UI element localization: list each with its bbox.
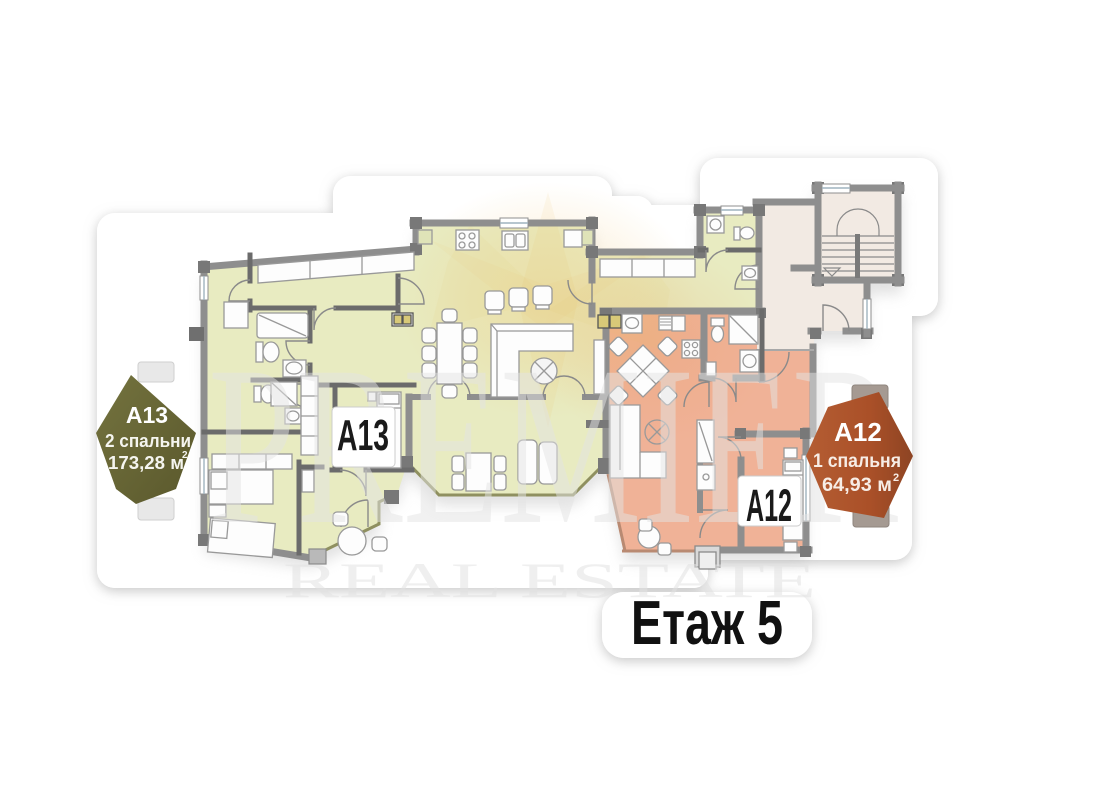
svg-text:64,93 м: 64,93 м bbox=[822, 475, 892, 496]
svg-text:2 спальни: 2 спальни bbox=[105, 430, 191, 451]
svg-text:1 спальня: 1 спальня bbox=[813, 451, 901, 472]
svg-text:A12: A12 bbox=[834, 417, 882, 447]
svg-text:2: 2 bbox=[893, 472, 899, 484]
svg-text:Етаж 5: Етаж 5 bbox=[631, 589, 783, 658]
svg-text:173,28 м: 173,28 м bbox=[108, 452, 184, 473]
svg-text:A12: A12 bbox=[746, 480, 792, 531]
svg-text:A13: A13 bbox=[126, 402, 168, 428]
svg-text:PREMIER: PREMIER bbox=[208, 320, 898, 572]
svg-text:A13: A13 bbox=[337, 411, 389, 460]
svg-text:2: 2 bbox=[182, 450, 188, 461]
